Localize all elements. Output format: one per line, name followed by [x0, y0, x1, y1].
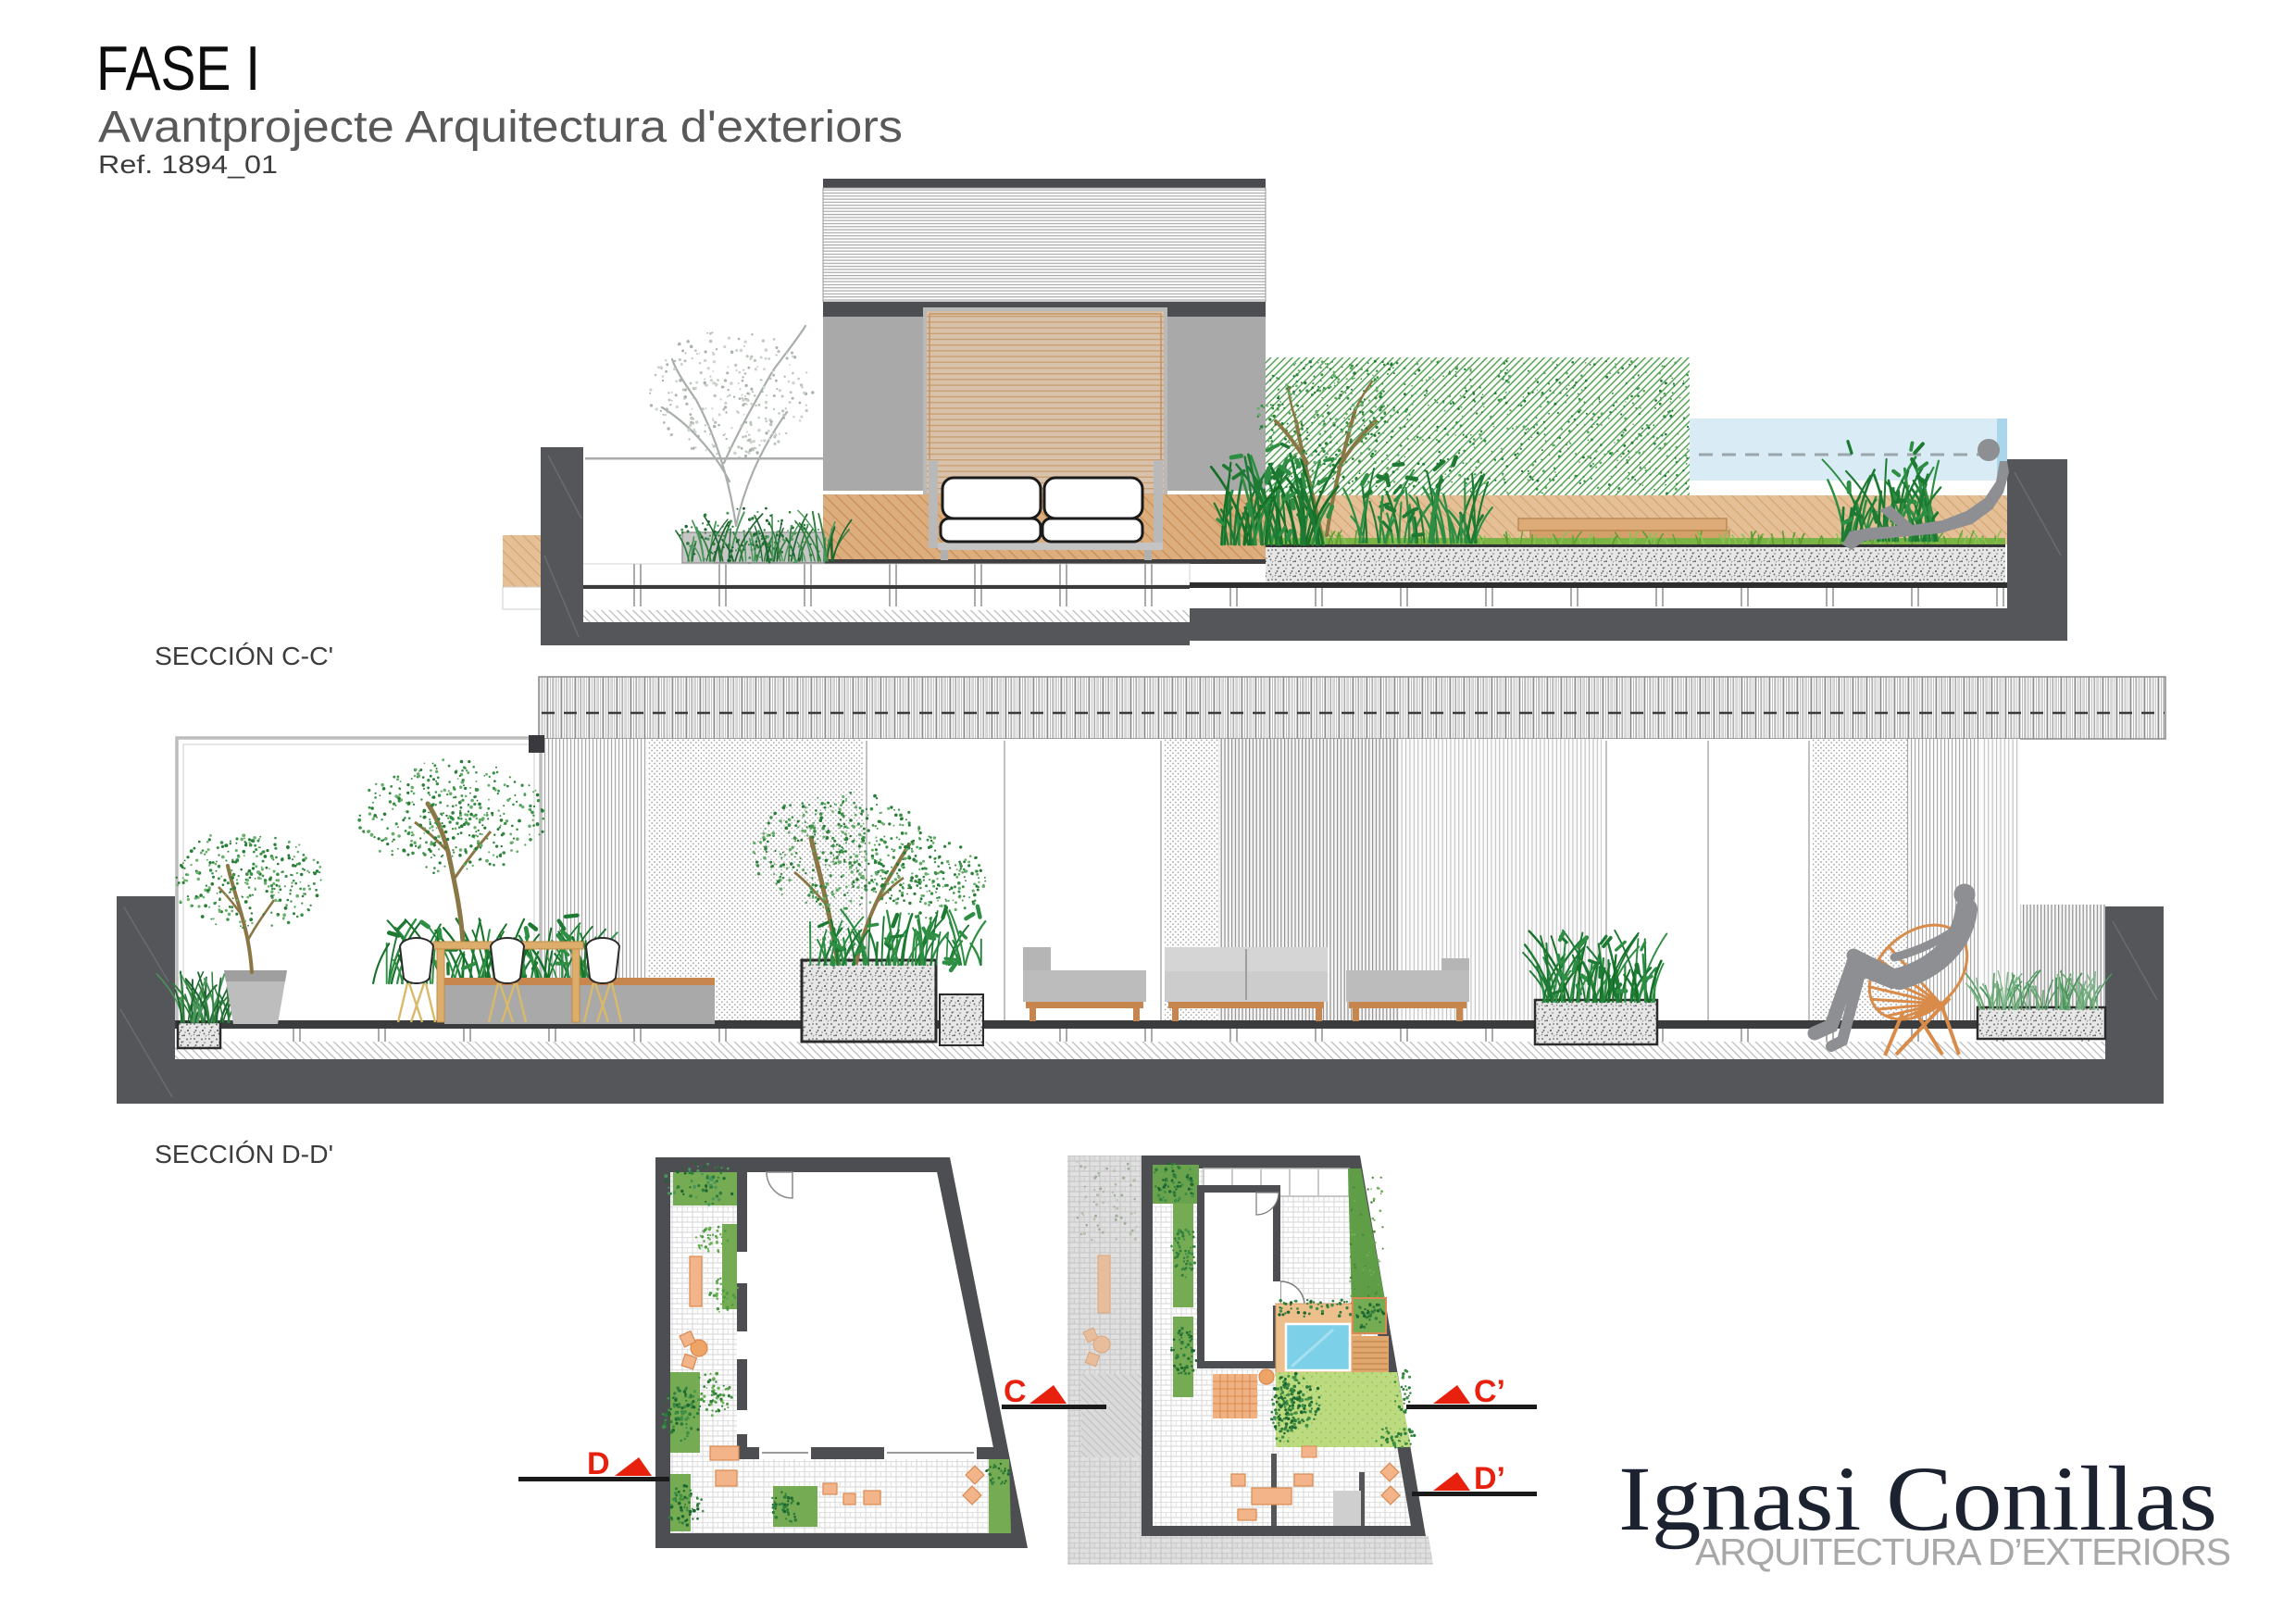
svg-text:Ref. 1894_01: Ref. 1894_01 [98, 150, 278, 179]
svg-text:C: C [1004, 1374, 1027, 1409]
svg-text:SECCIÓN D-D': SECCIÓN D-D' [155, 1140, 333, 1168]
svg-text:Avantprojecte Arquitectura d'e: Avantprojecte Arquitectura d'exteriors [98, 103, 903, 152]
svg-text:SECCIÓN C-C': SECCIÓN C-C' [155, 642, 333, 670]
svg-text:ARQUITECTURA D’EXTERIORS: ARQUITECTURA D’EXTERIORS [1695, 1530, 2231, 1573]
svg-text:D: D [587, 1446, 610, 1481]
svg-text:FASE I: FASE I [96, 33, 260, 104]
svg-text:D’: D’ [1474, 1461, 1505, 1496]
svg-text:C’: C’ [1474, 1374, 1505, 1409]
